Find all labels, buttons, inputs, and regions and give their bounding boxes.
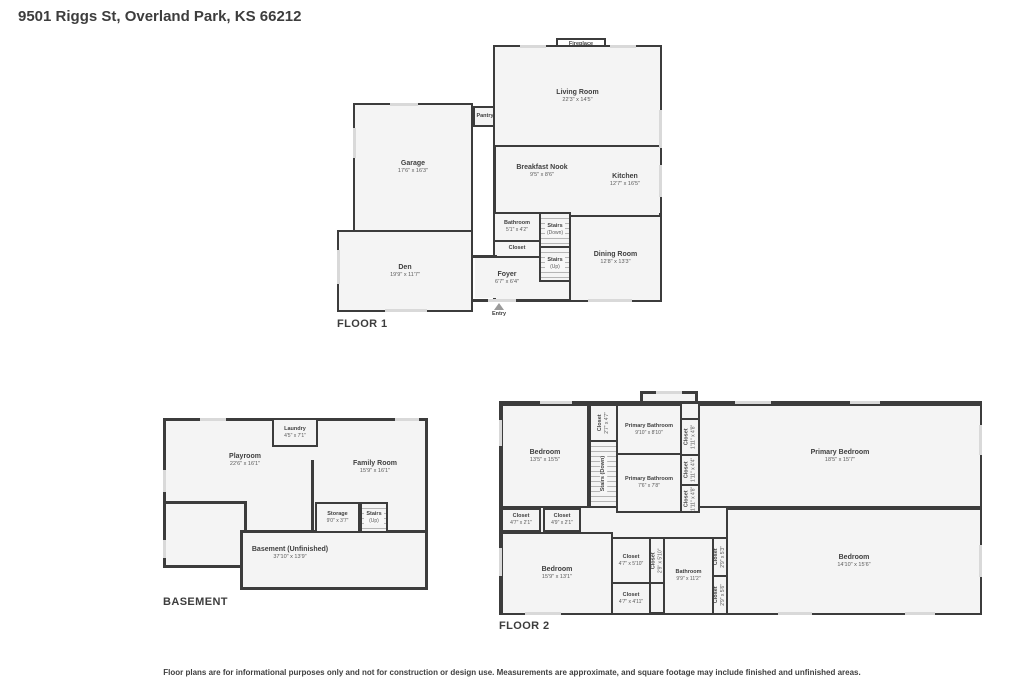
room-closet-bl: Closet4'7" x 5'10" [611,537,651,584]
floor1-label: FLOOR 1 [337,318,387,330]
window-marker [499,420,502,446]
room-dims: 14'10" x 15'6" [837,562,870,569]
window-marker [390,103,418,106]
window-marker [200,418,226,421]
room-label: Closet [650,548,657,573]
room-dims: 9'10" x 8'10" [625,430,673,437]
stairs-dims: (Up) [547,264,562,271]
room-basement-unfinished: Basement (Unfinished)37'10" x 13'9" [235,540,345,566]
room-label: Primary Bedroom [811,448,870,457]
room-foyer: Foyer6'7" x 6'4" [475,258,539,298]
floor2-label: FLOOR 2 [499,620,549,632]
window-marker [979,545,982,577]
room-label: Playroom [229,452,261,461]
wall-segment [163,501,247,504]
room-dims: 9'5" x 8'6" [516,172,567,179]
room-dims: 5'1" x 4'2" [504,227,530,234]
room-dims: 17'6" x 16'3" [398,168,428,175]
disclaimer-text: Floor plans are for informational purpos… [0,668,1024,677]
window-marker [540,401,572,404]
window-marker [659,110,662,148]
room-label: Closet [683,425,690,449]
room-bathroom-f2: Bathroom9'9" x 11'2" [663,537,714,615]
room-label: Closet [619,554,644,561]
room-label: Garage [398,159,428,168]
room-label: Laundry [284,426,306,433]
room-primary-bedroom: Primary Bedroom18'5" x 15'7" [698,404,982,508]
room-dims: 18'5" x 15'7" [811,457,870,464]
window-marker [525,612,561,615]
room-dims: 12'8" x 13'3" [594,259,638,266]
stairs-label: Stairs [547,223,563,230]
window-marker [337,250,340,284]
room-bedroom-bottom-right: Bedroom14'10" x 15'6" [726,508,982,615]
room-closet-bottom: Closet4'7" x 4'11" [611,582,651,615]
window-marker [499,548,502,576]
window-marker [778,612,812,615]
room-label: Dining Room [594,250,638,259]
room-label: Bedroom [530,448,561,457]
room-label: Bathroom [504,220,530,227]
room-bathroom-f1: Bathroom5'1" x 4'2" [493,212,541,242]
room-dims: 4'7" x 2'1" [510,520,532,527]
window-marker [610,45,636,48]
room-label: Closet [683,486,690,510]
room-breakfast-nook: Breakfast Nook9'5" x 8'6" [496,147,588,195]
room-closet-hall1: Closet4'7" x 2'1" [501,508,541,532]
room-dims: 4'7" x 4'11" [619,599,643,606]
entry-label-area: Entry [480,310,518,320]
stairs-label: Stairs (Down) [600,456,607,491]
entry-label: Entry [492,311,506,318]
room-label: Foyer [495,270,519,279]
room-label: Closet [619,592,643,599]
room-dining-room: Dining Room12'8" x 13'3" [569,215,662,302]
window-marker [656,391,682,394]
room-closet-pb2: Closet1'11" x 4'4" [680,454,700,486]
room-label: Closet [713,584,720,606]
room-dims: 15'9" x 13'1" [542,574,573,581]
room-label: Closet [713,546,720,568]
room-label: Storage [327,511,349,518]
page-title: 9501 Riggs St, Overland Park, KS 66212 [18,8,301,25]
entry-arrow-icon [494,303,504,310]
room-primary-bathroom-lower: Primary Bathroom7'6" x 7'8" [616,453,682,513]
room-label: Living Room [556,88,598,97]
room-dims: 12'7" x 16'5" [610,181,640,188]
room-closet-hall2: Closet4'9" x 2'1" [543,508,581,532]
room-label: Den [390,263,420,272]
window-marker [520,45,546,48]
room-label: Bedroom [542,565,573,574]
room-label: Primary Bathroom [625,423,673,430]
stairs-label: Stairs [366,511,381,518]
room-closet-f1: Closet [493,240,541,258]
room-dims: 2'7" x 4'7" [604,412,611,434]
room-laundry: Laundry4'5" x 7'1" [272,418,318,447]
room-label: Closet [510,513,532,520]
window-marker [905,612,935,615]
room-label: Closet [509,245,526,252]
room-dims: 19'9" x 11'7" [390,272,420,279]
room-dims: 4'5" x 7'1" [284,433,306,440]
room-dims: 7'6" x 7'8" [625,483,673,490]
room-label: Primary Bathroom [625,476,673,483]
room-dims: 22'6" x 16'1" [229,461,261,468]
room-garage: Garage17'6" x 16'3" [353,103,473,232]
wall-segment [473,255,497,258]
room-kitchen: Kitchen12'7" x 16'5" [590,147,660,213]
room-playroom: Playroom22'6" x 16'1" [200,448,290,472]
room-label: Closet [683,458,690,482]
window-marker [979,425,982,455]
room-closet-pb3: Closet1'11" x 4'8" [680,484,700,513]
stairs-dims: (Down) [547,230,563,237]
window-marker [353,128,356,158]
window-marker [588,299,632,302]
room-dims: 13'5" x 15'5" [530,457,561,464]
window-marker [385,309,427,312]
room-primary-bathroom-top: Primary Bathroom9'10" x 8'10" [616,404,682,455]
room-label: Pantry [476,113,493,120]
room-living-room: Living Room22'3" x 14'5" [493,45,662,147]
wall-segment [311,460,314,533]
room-label: Closet [551,513,573,520]
room-storage: Storage9'0" x 3'7" [315,502,360,533]
floor-plan-page: 9501 Riggs St, Overland Park, KS 66212 F… [0,0,1024,682]
room-dims: 1'11" x 4'4" [690,458,697,482]
room-label: Basement (Unfinished) [252,545,328,554]
room-dims: 9'9" x 11'2" [676,576,702,583]
stairs-down-f1: Stairs(Down) [539,212,571,248]
room-dims: 4'9" x 2'1" [551,520,573,527]
room-family-room: Family Room15'9" x 16'1" [330,455,420,479]
window-marker [163,470,166,492]
room-dims: 4'7" x 5'10" [619,561,644,568]
room-den: Den19'9" x 11'7" [337,230,473,312]
stairs-up-f1: Stairs(Up) [539,246,571,282]
room-closet-stair: Closet2'7" x 4'7" [589,404,618,442]
window-marker [735,401,771,404]
room-label: Closet [597,412,604,434]
room-label: Bathroom [676,569,702,576]
room-label: Family Room [353,459,397,468]
room-dims: 9'0" x 3'7" [327,518,349,525]
room-label: Bedroom [837,553,870,562]
window-marker [163,540,166,558]
room-dims: 1'11" x 4'8" [690,486,697,510]
room-bedroom-top-left: Bedroom13'5" x 15'5" [501,404,589,508]
room-dims: 1'11" x 4'8" [690,425,697,449]
window-marker [395,418,419,421]
entry-door-marker [488,299,516,302]
room-label: Breakfast Nook [516,163,567,172]
room-dims: 6'7" x 6'4" [495,279,519,286]
stairs-dims: (Up) [366,518,381,525]
stairs-label: Stairs [547,257,562,264]
wall-segment [244,501,247,533]
room-bedroom-bottom-left: Bedroom15'9" x 13'1" [501,532,613,615]
stairs-up-basement: Stairs(Up) [360,502,388,533]
stairs-down-f2: Stairs (Down) [589,440,618,508]
window-marker [850,401,880,404]
basement-label: BASEMENT [163,596,228,608]
room-dims: 15'9" x 16'1" [353,468,397,475]
window-marker [659,165,662,197]
room-dims: 37'10" x 13'9" [252,554,328,561]
room-closet-pb1: Closet1'11" x 4'8" [680,418,700,456]
room-dims: 22'3" x 14'5" [556,97,598,104]
room-label: Kitchen [610,172,640,181]
